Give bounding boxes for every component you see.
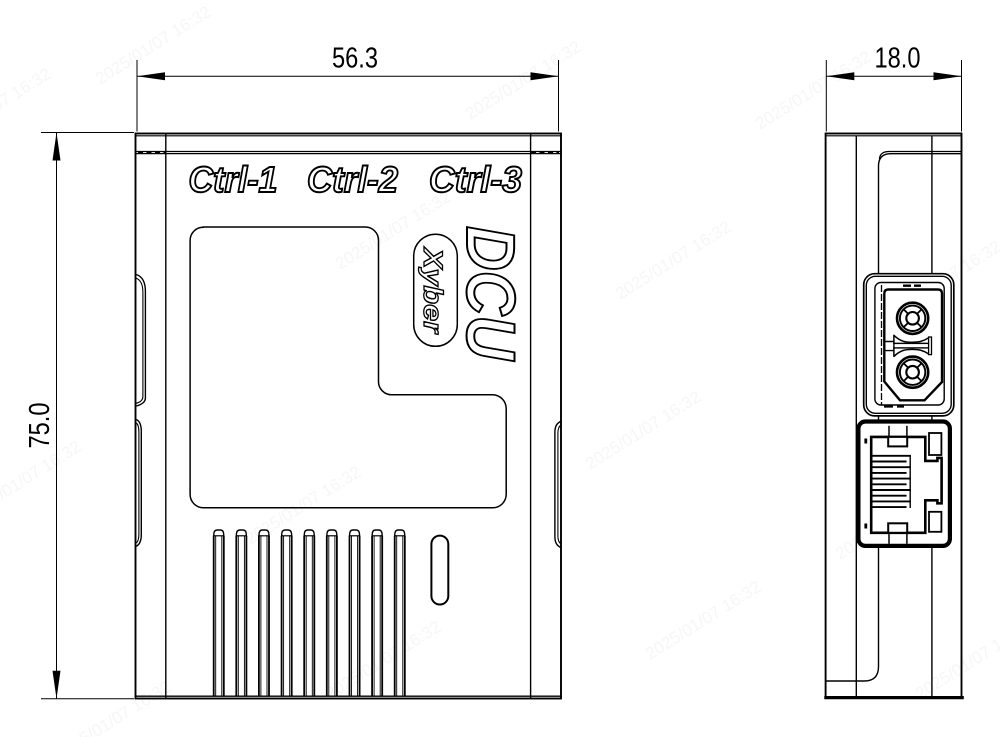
svg-text:Ctrl-1: Ctrl-1 [189,159,278,200]
svg-text:Ctrl-2: Ctrl-2 [307,159,398,200]
svg-text:56.3: 56.3 [332,43,378,75]
svg-text:Xyber: Xyber [418,246,448,335]
svg-text:75.0: 75.0 [24,403,56,449]
svg-text:18.0: 18.0 [875,43,921,75]
svg-text:DCU: DCU [452,226,529,362]
svg-text:Ctrl-3: Ctrl-3 [429,159,522,200]
